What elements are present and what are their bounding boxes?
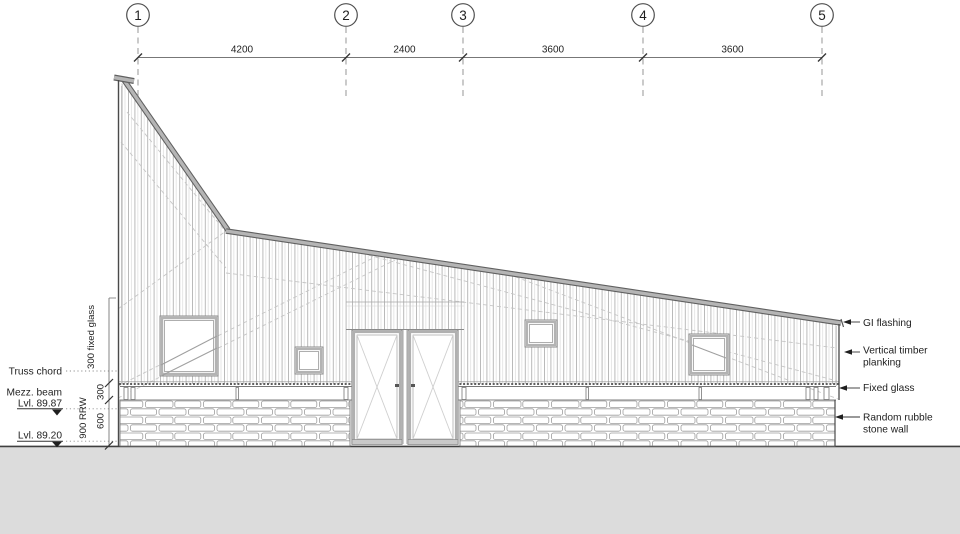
dim-300-label: 300 xyxy=(96,384,107,400)
right-callouts: GI flashing Vertical timber planking Fix… xyxy=(835,318,933,436)
mezz-beam-label: Mezz. beam xyxy=(7,388,62,399)
fixed-glass-dim-label: 300 fixed glass xyxy=(86,305,97,369)
callout-arrows xyxy=(842,322,860,417)
mezz-level-label: Lvl. 89.87 xyxy=(18,399,63,410)
span-dim-3: 3600 xyxy=(542,45,565,56)
grid-bubble-label-2: 2 xyxy=(342,8,350,23)
grid-system: 1 2 3 4 5 4200 2400 3600 3600 xyxy=(127,4,834,96)
double-doors xyxy=(352,330,458,445)
ground-level-label: Lvl. 89.20 xyxy=(18,431,63,442)
elevation-drawing-sheet: 1 2 3 4 5 4200 2400 3600 3600 Truss chor… xyxy=(0,0,960,534)
door-handle xyxy=(395,384,399,387)
truss-chord-label: Truss chord xyxy=(9,367,63,378)
left-vertical-dimension: 300 fixed glass 300 600 900 RRW xyxy=(78,298,116,450)
span-dim-2: 2400 xyxy=(393,45,416,56)
ground xyxy=(0,446,960,534)
door-right xyxy=(408,330,458,445)
level-marker-icon xyxy=(52,410,62,416)
window-right xyxy=(689,334,729,375)
span-dim-1: 4200 xyxy=(231,45,254,56)
window-small-left xyxy=(295,347,323,374)
callout-fixed-glass: Fixed glass xyxy=(863,383,915,394)
stone-wall xyxy=(120,400,835,446)
window-small-mid xyxy=(525,320,557,347)
grid-bubble-label-3: 3 xyxy=(459,8,467,23)
window-large-left xyxy=(160,316,218,376)
door-handle xyxy=(411,384,415,387)
fixed-glass-strip xyxy=(120,387,836,401)
callout-timber-line1: Vertical timber xyxy=(863,346,928,357)
grid-bubbles xyxy=(127,4,834,27)
span-dim-4: 3600 xyxy=(721,45,744,56)
grid-bubble-label-4: 4 xyxy=(639,8,647,23)
grid-bubble-label-1: 1 xyxy=(134,8,142,23)
dim-600-label: 600 xyxy=(96,413,107,429)
left-annotations: Truss chord Mezz. beam Lvl. 89.87 Lvl. 8… xyxy=(7,298,117,450)
elevation-drawing: 1 2 3 4 5 4200 2400 3600 3600 Truss chor… xyxy=(0,0,960,534)
callout-timber-line2: planking xyxy=(863,358,901,369)
callout-rubble-line2: stone wall xyxy=(863,425,908,436)
callout-gi-flashing: GI flashing xyxy=(863,318,912,329)
callout-rubble-line1: Random rubble xyxy=(863,413,933,424)
rrw-dim-label: 900 RRW xyxy=(78,396,89,438)
door-left xyxy=(352,330,402,445)
grid-bubble-label-5: 5 xyxy=(818,8,826,23)
